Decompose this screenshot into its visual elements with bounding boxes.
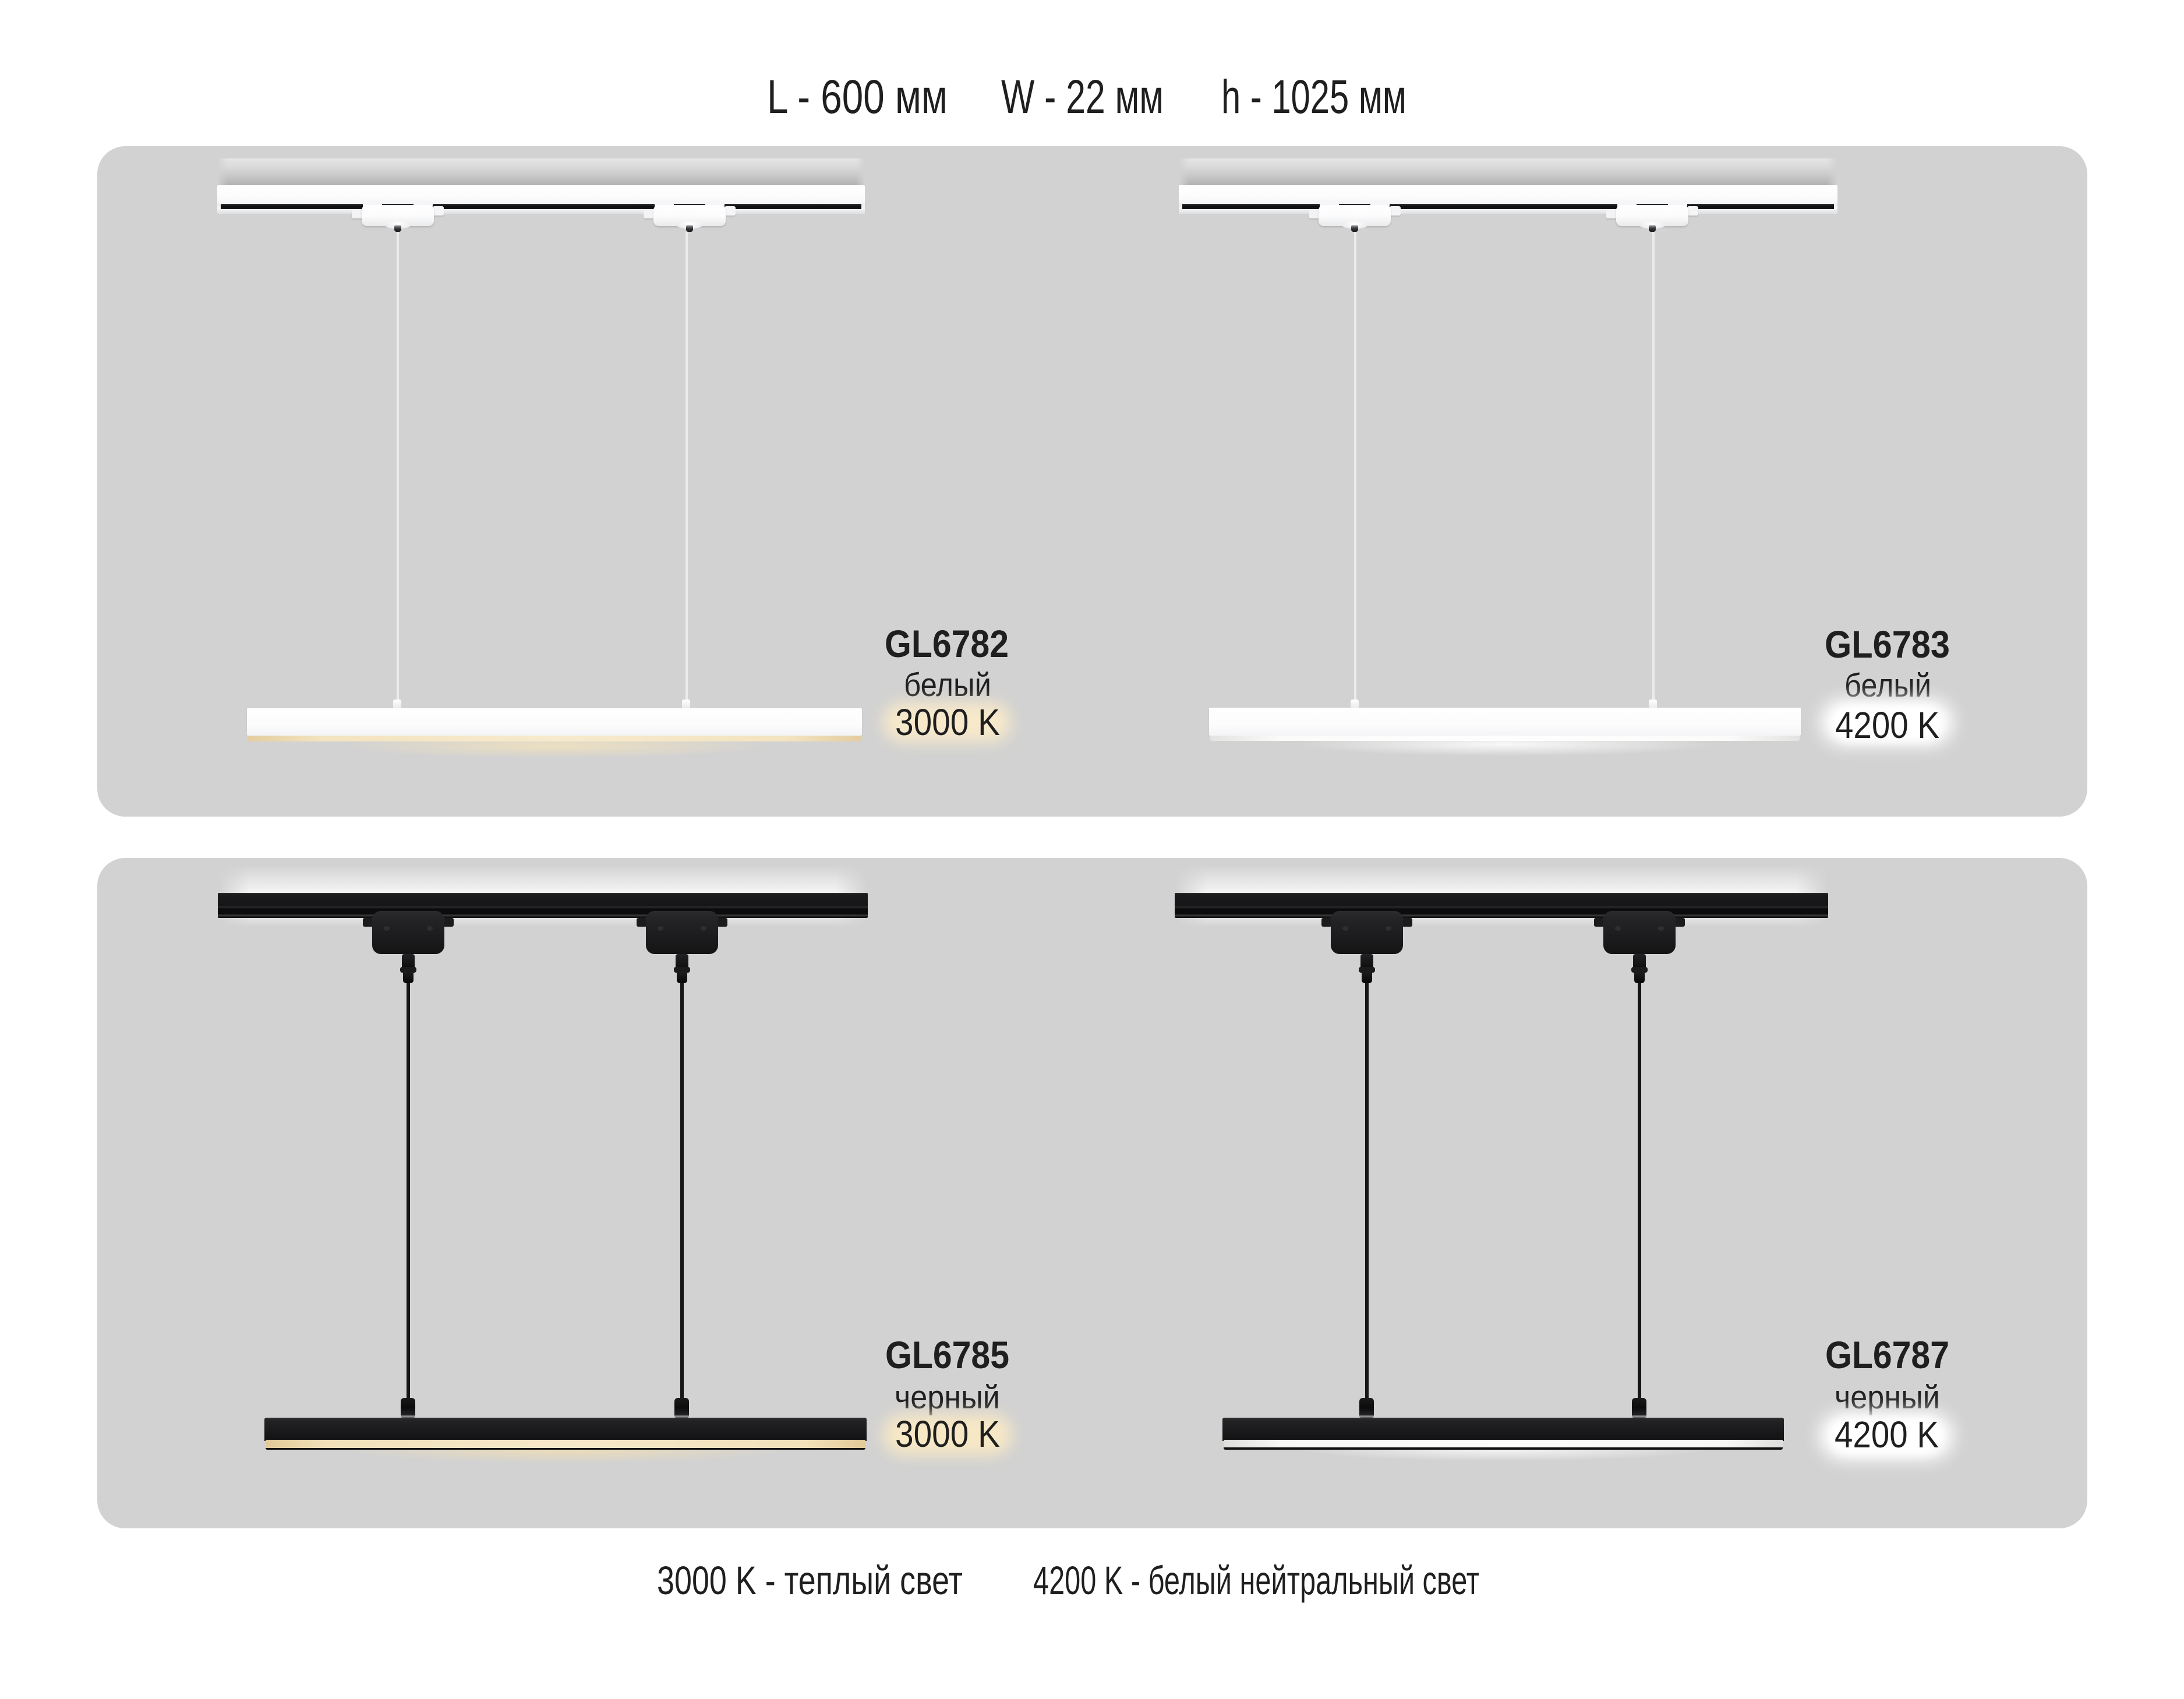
svg-text:L - 600 мм: L - 600 мм — [767, 70, 948, 123]
svg-text:GL6782: GL6782 — [885, 622, 1009, 665]
svg-text:h - 1025 мм: h - 1025 мм — [1221, 70, 1406, 123]
svg-text:4200 K: 4200 K — [1835, 1414, 1939, 1456]
svg-text:W - 22 мм: W - 22 мм — [1001, 70, 1164, 123]
svg-text:GL6783: GL6783 — [1825, 623, 1950, 666]
svg-text:4200 K - белый нейтральный све: 4200 K - белый нейтральный свет — [1033, 1558, 1479, 1603]
svg-text:3000 K: 3000 K — [895, 1413, 1000, 1455]
svg-text:GL6785: GL6785 — [885, 1333, 1009, 1376]
svg-text:3000 K - теплый свет: 3000 K - теплый свет — [657, 1558, 963, 1603]
svg-text:3000 K: 3000 K — [895, 701, 1000, 743]
svg-text:GL6787: GL6787 — [1825, 1333, 1949, 1376]
svg-text:4200 K: 4200 K — [1835, 704, 1939, 746]
